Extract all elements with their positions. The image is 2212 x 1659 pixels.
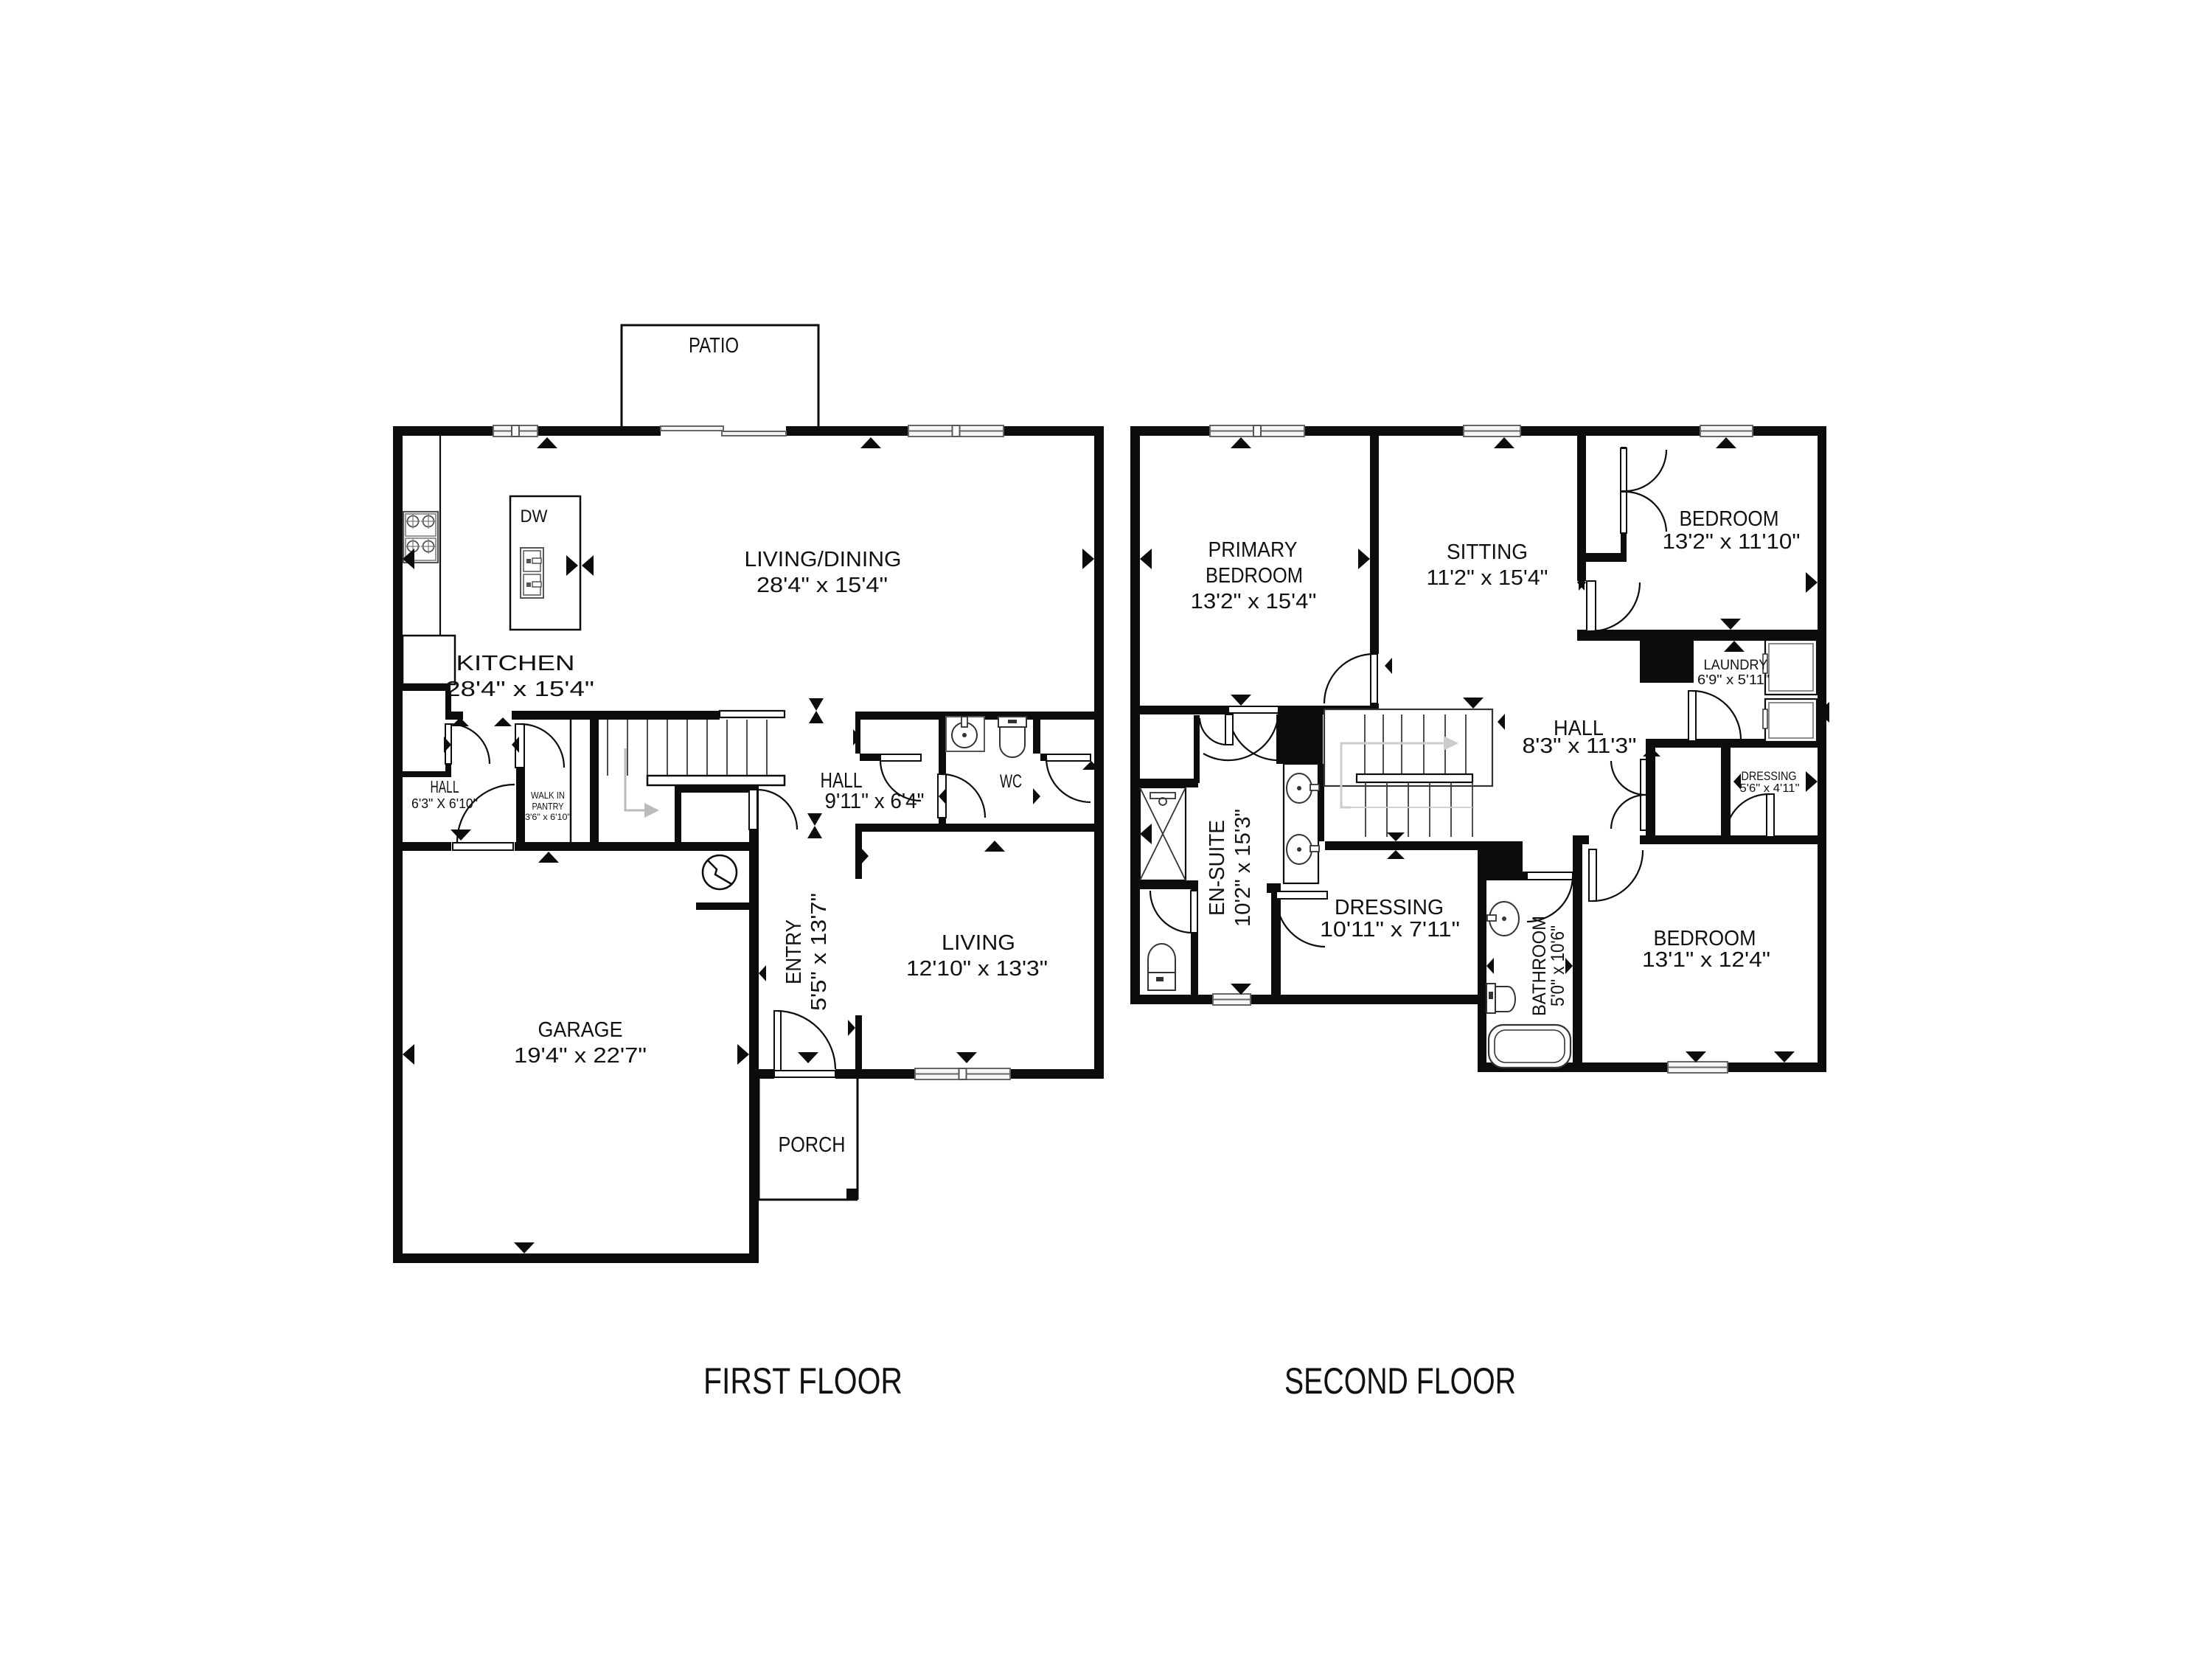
svg-text:28'4" x 15'4": 28'4" x 15'4" — [757, 574, 888, 597]
svg-text:9'11" x 6'4": 9'11" x 6'4" — [825, 790, 925, 813]
svg-text:DRESSING: DRESSING — [1335, 896, 1444, 919]
svg-text:SITTING: SITTING — [1447, 540, 1528, 564]
svg-text:BATHROOM: BATHROOM — [1529, 916, 1550, 1016]
svg-text:PORCH: PORCH — [779, 1133, 846, 1157]
svg-text:WC: WC — [1000, 771, 1022, 792]
svg-text:6'3" X 6'10": 6'3" X 6'10" — [411, 796, 478, 811]
svg-text:10'2" x 15'3": 10'2" x 15'3" — [1231, 809, 1255, 927]
svg-text:19'4" x 22'7": 19'4" x 22'7" — [514, 1044, 647, 1068]
svg-text:5'6" x 4'11": 5'6" x 4'11" — [1740, 782, 1800, 795]
svg-text:EN-SUITE: EN-SUITE — [1206, 820, 1229, 916]
svg-text:DW: DW — [521, 507, 548, 526]
svg-text:10'11" x 7'11": 10'11" x 7'11" — [1320, 918, 1460, 942]
svg-text:PANTRY: PANTRY — [532, 801, 564, 812]
svg-text:BEDROOM: BEDROOM — [1206, 564, 1303, 588]
svg-text:HALL: HALL — [431, 777, 459, 796]
svg-text:28'4" x 15'4": 28'4" x 15'4" — [445, 678, 594, 701]
svg-text:3'6" x 6'10": 3'6" x 6'10" — [525, 812, 571, 822]
svg-text:BEDROOM: BEDROOM — [1680, 507, 1779, 531]
svg-text:BEDROOM: BEDROOM — [1654, 927, 1756, 950]
svg-text:KITCHEN: KITCHEN — [456, 652, 575, 675]
svg-text:8'3" x 11'3": 8'3" x 11'3" — [1523, 734, 1637, 758]
svg-text:DRESSING: DRESSING — [1742, 769, 1797, 783]
svg-text:WALK IN: WALK IN — [531, 790, 565, 801]
svg-text:SECOND FLOOR: SECOND FLOOR — [1284, 1360, 1516, 1402]
svg-text:13'2" x 15'4": 13'2" x 15'4" — [1191, 590, 1317, 613]
svg-text:13'2" x 11'10": 13'2" x 11'10" — [1663, 530, 1801, 554]
svg-text:GARAGE: GARAGE — [538, 1018, 623, 1042]
svg-text:LIVING/DINING: LIVING/DINING — [745, 548, 902, 571]
svg-text:PATIO: PATIO — [689, 334, 739, 358]
svg-text:5'5" x 13'7": 5'5" x 13'7" — [807, 893, 831, 1011]
svg-text:12'10" x 13'3": 12'10" x 13'3" — [906, 957, 1048, 981]
svg-text:13'1" x 12'4": 13'1" x 12'4" — [1642, 948, 1770, 972]
svg-text:6'9" x 5'11": 6'9" x 5'11" — [1697, 672, 1770, 687]
svg-text:LAUNDRY: LAUNDRY — [1704, 658, 1768, 673]
svg-text:PRIMARY: PRIMARY — [1208, 538, 1298, 562]
svg-text:LIVING: LIVING — [942, 931, 1015, 955]
svg-text:ENTRY: ENTRY — [782, 919, 806, 984]
svg-text:FIRST FLOOR: FIRST FLOOR — [703, 1360, 902, 1402]
svg-text:5'0" x 10'6": 5'0" x 10'6" — [1548, 925, 1568, 1006]
svg-text:11'2" x 15'4": 11'2" x 15'4" — [1427, 566, 1548, 590]
